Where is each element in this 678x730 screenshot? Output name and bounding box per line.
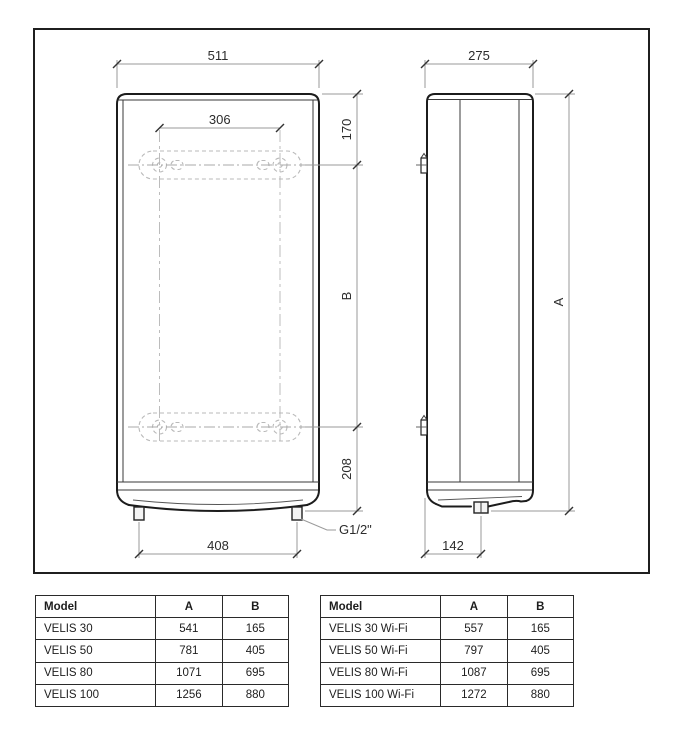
front-cap-bottom-arc <box>129 505 307 511</box>
front-cap-inner-arc <box>133 500 303 505</box>
cell-b: 880 <box>222 684 288 706</box>
table-row: VELIS 80 1071 695 <box>36 662 289 684</box>
table-row: VELIS 50 781 405 <box>36 640 289 662</box>
hook-body <box>421 420 427 435</box>
dim-label-depth: 275 <box>468 48 490 63</box>
thread-leader-line <box>301 519 336 530</box>
front-cap-corner-left <box>117 490 129 505</box>
side-cap-bottom-right <box>488 501 526 507</box>
dim-label-bracket-width: 306 <box>209 112 231 127</box>
cell-model: VELIS 80 <box>36 662 156 684</box>
table-row: VELIS 30 Wi-Fi 557 165 <box>321 618 574 640</box>
table-row: VELIS 100 1256 880 <box>36 684 289 706</box>
cell-model: VELIS 50 Wi-Fi <box>321 640 441 662</box>
wall-hook-upper <box>416 154 427 174</box>
spec-table-wifi: Model A B VELIS 30 Wi-Fi 557 165 VELIS 5… <box>320 595 574 707</box>
wall-hook-lower <box>416 416 427 436</box>
table-row: VELIS 50 Wi-Fi 797 405 <box>321 640 574 662</box>
cell-b: 695 <box>222 662 288 684</box>
side-cap-bottom-left <box>436 504 471 507</box>
dim-label-connection-offset: 142 <box>442 538 464 553</box>
cell-a: 781 <box>156 640 222 662</box>
cell-model: VELIS 80 Wi-Fi <box>321 662 441 684</box>
thread-label: G1/2" <box>339 522 372 537</box>
table-row: VELIS 80 Wi-Fi 1087 695 <box>321 662 574 684</box>
cell-b: 880 <box>507 684 573 706</box>
technical-drawing-panel: 511 306 170 B 208 408 G1/2" <box>33 28 650 574</box>
cell-b: 165 <box>507 618 573 640</box>
table-row: VELIS 30 541 165 <box>36 618 289 640</box>
cell-a: 1087 <box>441 662 507 684</box>
col-header-a: A <box>441 596 507 618</box>
front-view <box>117 94 363 520</box>
dim-label-bracket-span: B <box>339 292 354 301</box>
cell-a: 1071 <box>156 662 222 684</box>
col-header-b: B <box>507 596 573 618</box>
page: { "drawing": { "front": { "dim_width": "… <box>0 0 678 730</box>
dimension-drawing: 511 306 170 B 208 408 G1/2" <box>35 30 648 572</box>
col-header-b: B <box>222 596 288 618</box>
side-cap-corner-right <box>526 490 533 501</box>
dim-label-height: A <box>551 297 566 306</box>
side-cap-corner-left <box>427 490 436 504</box>
cell-model: VELIS 30 <box>36 618 156 640</box>
cell-b: 405 <box>507 640 573 662</box>
dim-label-bracket-to-bottom: 208 <box>339 458 354 480</box>
col-header-a: A <box>156 596 222 618</box>
cell-model: VELIS 100 Wi-Fi <box>321 684 441 706</box>
cell-a: 541 <box>156 618 222 640</box>
dim-label-width: 511 <box>208 48 229 63</box>
spec-table-standard: Model A B VELIS 30 541 165 VELIS 50 781 … <box>35 595 289 707</box>
table-header-row: Model A B <box>321 596 574 618</box>
cell-model: VELIS 100 <box>36 684 156 706</box>
side-cap-inner-line <box>438 497 522 501</box>
cell-b: 405 <box>222 640 288 662</box>
cell-model: VELIS 50 <box>36 640 156 662</box>
cell-model: VELIS 30 Wi-Fi <box>321 618 441 640</box>
cell-a: 1272 <box>441 684 507 706</box>
hook-body <box>421 158 427 173</box>
cell-a: 797 <box>441 640 507 662</box>
water-connection-left <box>134 507 144 520</box>
front-body-outline <box>117 94 319 490</box>
cell-a: 1256 <box>156 684 222 706</box>
side-view <box>416 94 533 513</box>
dim-label-top-to-bracket: 170 <box>339 119 354 141</box>
cell-a: 557 <box>441 618 507 640</box>
table-row: VELIS 100 Wi-Fi 1272 880 <box>321 684 574 706</box>
col-header-model: Model <box>36 596 156 618</box>
side-body-outline <box>427 94 533 490</box>
water-connection-right <box>292 507 302 520</box>
col-header-model: Model <box>321 596 441 618</box>
front-cap-corner-right <box>307 490 319 505</box>
cell-b: 695 <box>507 662 573 684</box>
cell-b: 165 <box>222 618 288 640</box>
dim-label-connections: 408 <box>207 538 229 553</box>
table-header-row: Model A B <box>36 596 289 618</box>
